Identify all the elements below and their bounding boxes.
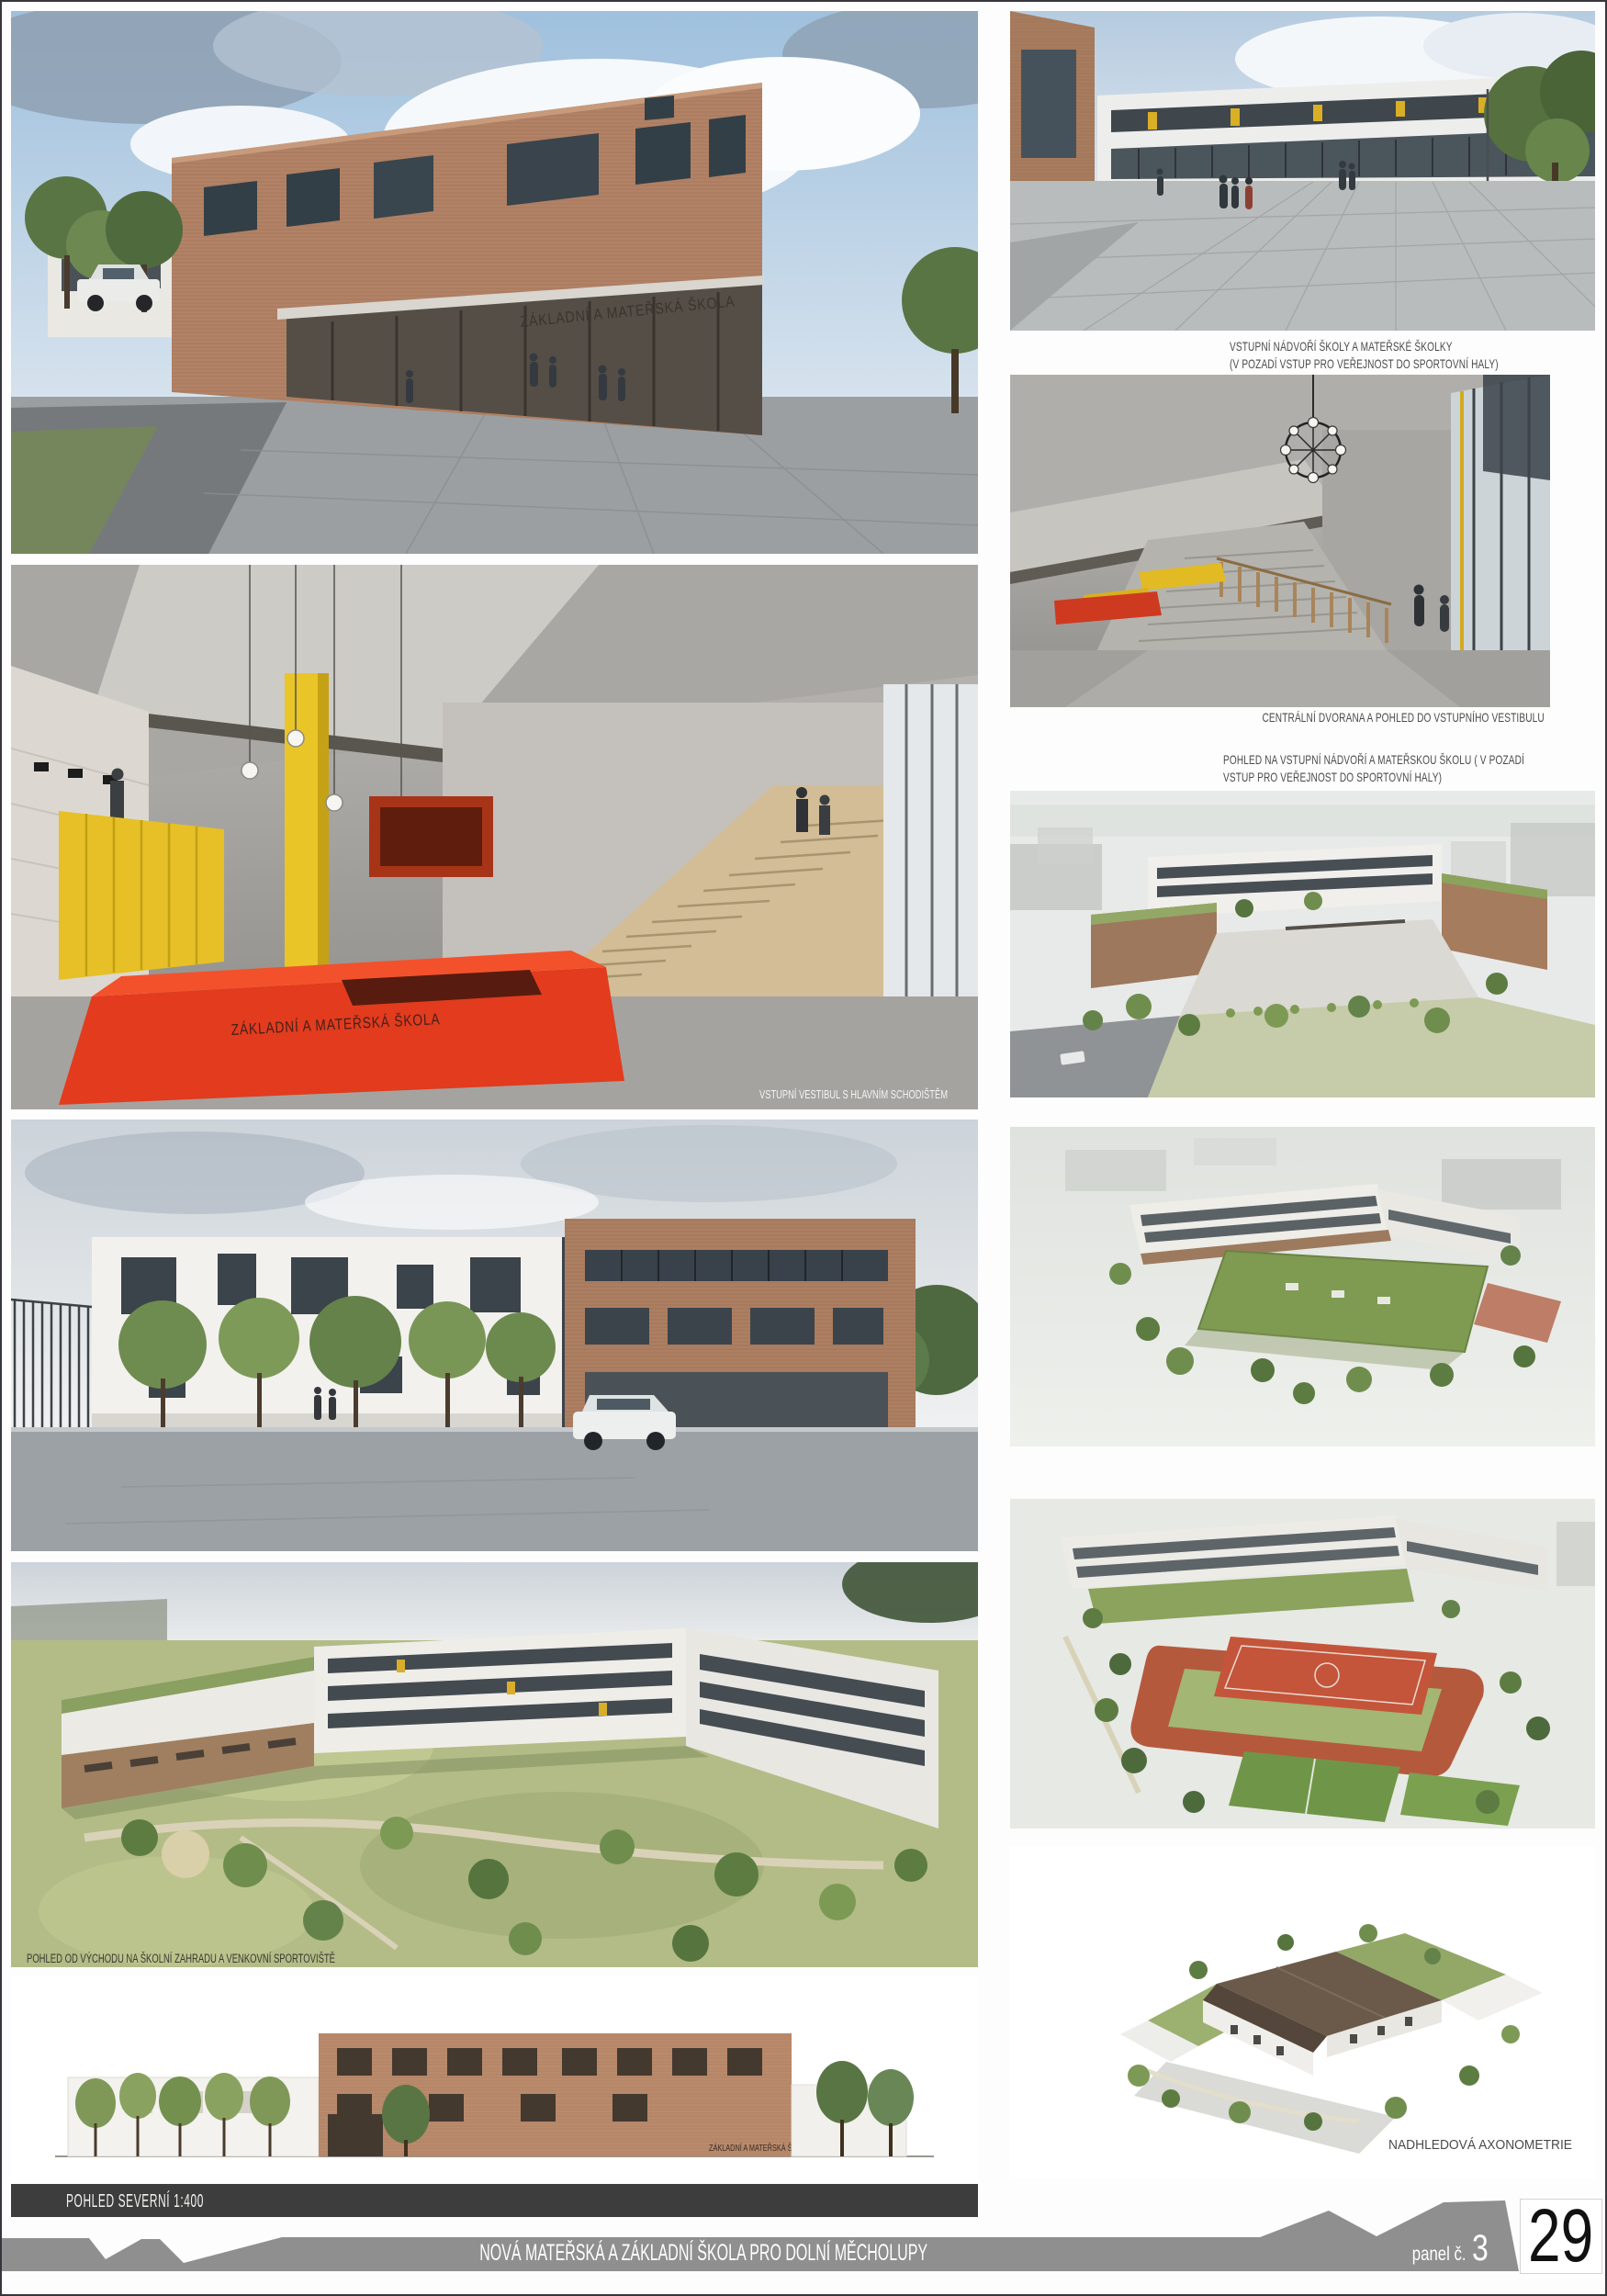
- render-main-entrance-image: ZÁKLADNÍ A MATEŘSKÁ ŠKOLA: [11, 11, 978, 554]
- axonometry-caption: NADHLEDOVÁ AXONOMETRIE: [1388, 2137, 1572, 2153]
- project-title: NOVÁ MATEŘSKÁ A ZÁKLADNÍ ŠKOLA PRO DOLNÍ…: [2, 2240, 1405, 2267]
- render-vestibule-image: ZÁKLADNÍ A MATEŘSKÁ ŠKOLA VSTUPNÍ VESTIB…: [11, 565, 978, 1109]
- render-aerial-sports: [1010, 1499, 1595, 1829]
- render-axonometry-image: NADHLEDOVÁ AXONOMETRIE: [1010, 1846, 1595, 2178]
- aerial-caption-line2: VSTUP PRO VEŘEJNOST DO SPORTOVNÍ HALY): [1223, 770, 1442, 784]
- render-central-hall: [1010, 375, 1550, 707]
- render-north-facade-image: [11, 1120, 978, 1551]
- render-north-facade: [11, 1120, 978, 1551]
- courtyard-caption: VSTUPNÍ NÁDVOŘÍ ŠKOLY A MATEŘSKÉ ŠKOLKY …: [1230, 338, 1603, 373]
- render-courtyard-image: [1010, 11, 1595, 331]
- courtyard-caption-line1: VSTUPNÍ NÁDVOŘÍ ŠKOLY A MATEŘSKÉ ŠKOLKY: [1230, 339, 1453, 354]
- render-central-hall-image: [1010, 375, 1550, 707]
- sheet-number-box: 29: [1520, 2199, 1602, 2274]
- project-title-text: NOVÁ MATEŘSKÁ A ZÁKLADNÍ ŠKOLA PRO DOLNÍ…: [479, 2240, 927, 2267]
- hall-caption: CENTRÁLNÍ DVORANA A POHLED DO VSTUPNÍHO …: [1010, 709, 1545, 726]
- render-aerial-entrance: [1010, 791, 1595, 1097]
- render-aerial-green-roof: [1010, 1127, 1595, 1446]
- render-garden-aerial-image: POHLED OD VÝCHODU NA ŠKOLNÍ ZAHRADU A VE…: [11, 1562, 978, 1967]
- render-vestibule-interior: ZÁKLADNÍ A MATEŘSKÁ ŠKOLA VSTUPNÍ VESTIB…: [11, 565, 978, 1109]
- render-axonometry: NADHLEDOVÁ AXONOMETRIE: [1010, 1846, 1595, 2178]
- render-courtyard: [1010, 11, 1595, 331]
- hall-caption-text: CENTRÁLNÍ DVORANA A POHLED DO VSTUPNÍHO …: [1263, 709, 1545, 726]
- garden-caption-overlay: POHLED OD VÝCHODU NA ŠKOLNÍ ZAHRADU A VE…: [27, 1952, 335, 1965]
- render-main-entrance: ZÁKLADNÍ A MATEŘSKÁ ŠKOLA: [11, 11, 978, 554]
- sheet-number: 29: [1528, 2199, 1593, 2274]
- aerial-entrance-caption: POHLED NA VSTUPNÍ NÁDVOŘÍ A MATEŘSKOU ŠK…: [1223, 751, 1607, 786]
- vestibule-caption-overlay: VSTUPNÍ VESTIBUL S HLAVNÍM SCHODIŠTĚM: [759, 1087, 948, 1101]
- panel-label: panel č.: [1412, 2244, 1467, 2266]
- panel-number-tag: panel č. 3: [1412, 2228, 1489, 2269]
- render-aerial-green-roof-image: [1010, 1127, 1595, 1446]
- panel-number: 3: [1472, 2228, 1489, 2269]
- render-garden-aerial: POHLED OD VÝCHODU NA ŠKOLNÍ ZAHRADU A VE…: [11, 1562, 978, 1967]
- render-aerial-entrance-image: [1010, 791, 1595, 1097]
- courtyard-caption-line2: (V POZADÍ VSTUP PRO VEŘEJNOST DO SPORTOV…: [1230, 356, 1499, 371]
- render-aerial-sports-image: [1010, 1499, 1595, 1829]
- drawing-north-elevation: ZÁKLADNÍ A MATEŘSKÁ ŠKOLA POHLED SEVERNÍ…: [11, 1976, 978, 2217]
- north-elevation-image: ZÁKLADNÍ A MATEŘSKÁ ŠKOLA POHLED SEVERNÍ…: [11, 1976, 978, 2217]
- aerial-caption-line1: POHLED NA VSTUPNÍ NÁDVOŘÍ A MATEŘSKOU ŠK…: [1223, 752, 1524, 767]
- presentation-board: ZÁKLADNÍ A MATEŘSKÁ ŠKOLA: [0, 0, 1607, 2296]
